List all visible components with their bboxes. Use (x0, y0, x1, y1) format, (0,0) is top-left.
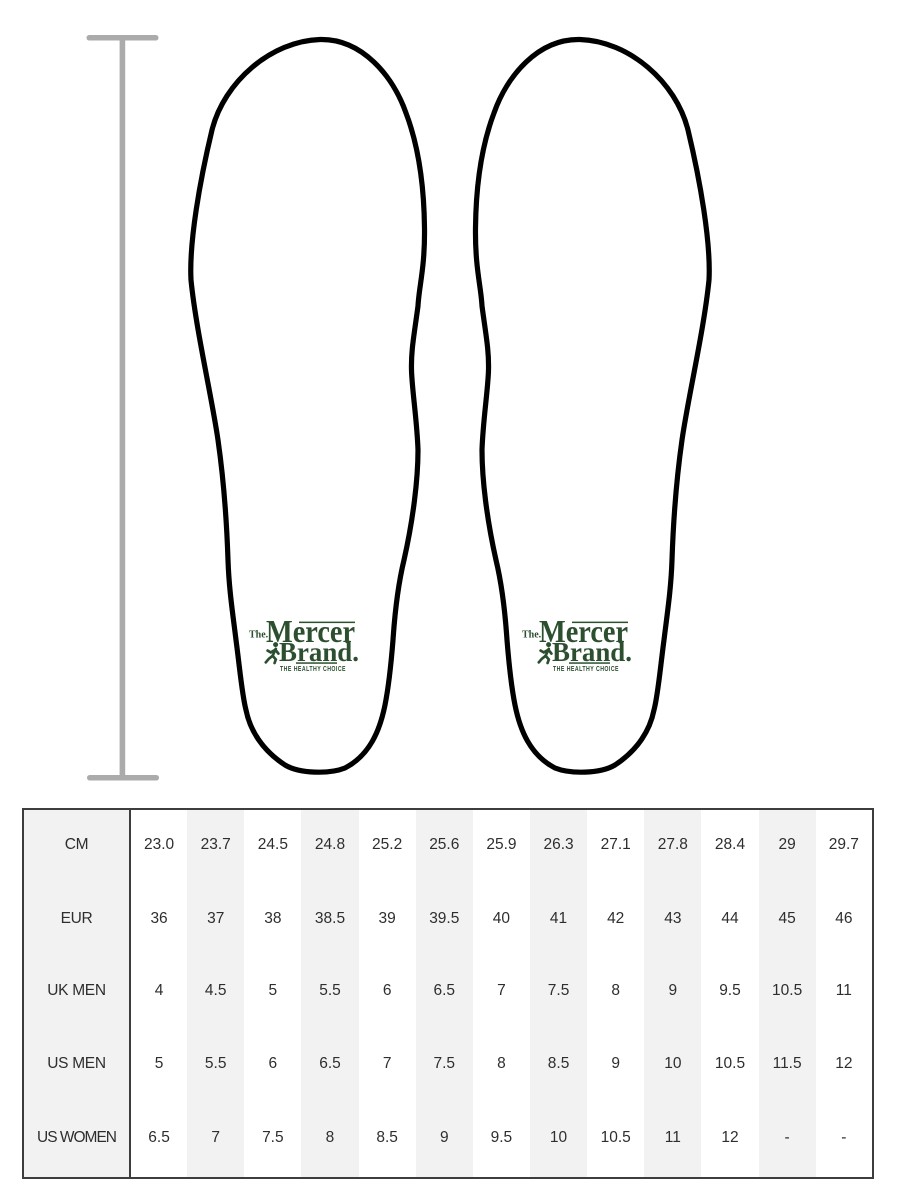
svg-text:THE HEALTHY CHOICE: THE HEALTHY CHOICE (280, 666, 346, 673)
